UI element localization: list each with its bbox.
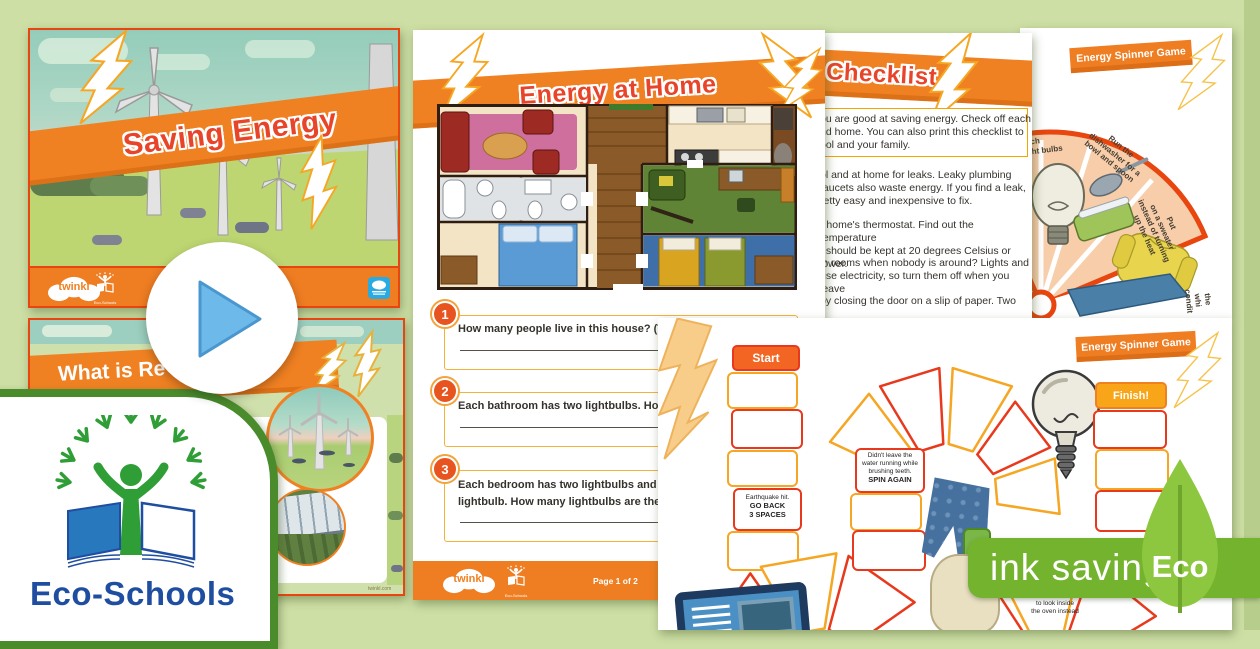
- checklist-page: Checklist ou are good at saving energy. …: [818, 33, 1032, 318]
- site-note: twinkl.com: [368, 586, 391, 592]
- play-button[interactable]: [146, 242, 298, 394]
- finish-space: Finish!: [1095, 382, 1167, 409]
- house-floor-plan: [437, 104, 797, 290]
- checklist-intro: ou are good at saving energy. Check off …: [820, 113, 1031, 152]
- eco-schools-caption: Eco-Schools: [503, 593, 529, 598]
- background-strip: [1244, 0, 1260, 630]
- question2-number: 2: [432, 378, 458, 404]
- solar-panel-photo-circle: [268, 488, 346, 566]
- question3-number: 3: [432, 456, 458, 482]
- twinkl-logo: twinkl: [441, 568, 497, 594]
- twinkl-badge-icon: [368, 277, 390, 299]
- checklist-title: Checklist: [825, 58, 938, 92]
- game-space: [1093, 410, 1167, 449]
- lightbulb-illustration: [1030, 366, 1102, 484]
- spinner-game-page: Energy Spinner Game: [1020, 28, 1232, 318]
- eco-schools-caption: Eco-Schools: [92, 300, 118, 305]
- page-number-label: Page 1 of 2: [593, 576, 638, 586]
- eco-leaf-label: Eco: [1152, 549, 1209, 584]
- eco-leaf-icon: Eco: [1134, 455, 1226, 617]
- question1-number: 1: [432, 301, 458, 327]
- finish-label: Finish!: [1113, 390, 1149, 402]
- play-icon: [198, 280, 262, 358]
- game-space: [850, 493, 922, 531]
- eco-schools-mini-logo: Eco-Schools: [92, 272, 118, 302]
- eco-schools-mini-logo: Eco-Schools: [503, 565, 529, 595]
- slide2-side-illustration: [387, 415, 405, 585]
- spin-again-text: Didn't leave thewater running whilebrush…: [857, 452, 923, 485]
- twinkl-logo-text: twinkl: [441, 573, 497, 585]
- eco-schools-card: Eco-Schools: [0, 389, 278, 649]
- eco-schools-wordmark: Eco-Schools: [30, 575, 240, 613]
- spin-again-space: Didn't leave thewater running whilebrush…: [855, 448, 925, 493]
- checklist-item: by closing the door on a slip of paper. …: [820, 295, 1016, 308]
- resource-preview: Saving Energy twinkl Eco-Schools What is…: [0, 0, 1260, 630]
- lightning-bolt-icon: [349, 325, 394, 406]
- checklist-item: in rooms when nobody is around? Lights a…: [820, 257, 1032, 296]
- eco-schools-logo: [46, 415, 216, 573]
- game-space: [852, 530, 926, 571]
- checklist-item: ol and at home for leaks. Leaky plumbing…: [820, 169, 1026, 208]
- wind-farm-photo-circle: [266, 384, 374, 492]
